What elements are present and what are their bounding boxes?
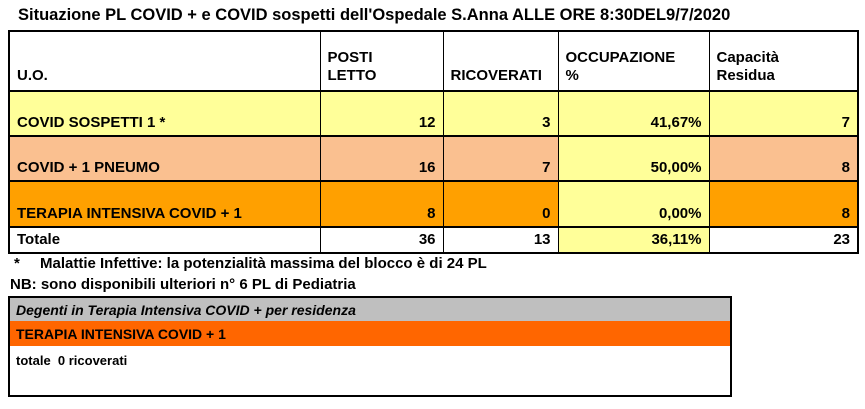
residence-total-line: totale 0 ricoverati — [10, 346, 730, 375]
posti-letto-cell: 16 — [320, 136, 443, 181]
residence-box-header: Degenti in Terapia Intensiva COVID + per… — [10, 298, 730, 321]
posti-letto-cell: 12 — [320, 91, 443, 136]
residence-ward-row: TERAPIA INTENSIVA COVID + 1 — [10, 321, 730, 346]
asterisk-marker: * — [14, 255, 40, 272]
occupazione-cell: 50,00% — [558, 136, 709, 181]
ricoverati-cell: 3 — [443, 91, 558, 136]
occupazione-cell: 0,00% — [558, 181, 709, 227]
page-title: Situazione PL COVID + e COVID sospetti d… — [18, 6, 730, 25]
header-posti-letto: POSTI LETTO — [320, 31, 443, 91]
capacita-residua-cell: 8 — [709, 136, 858, 181]
ricoverati-cell: 0 — [443, 181, 558, 227]
footnote-text: Malattie Infettive: la potenzialità mass… — [40, 255, 487, 272]
totale-posti-letto-cell: 36 — [320, 227, 443, 253]
header-ricoverati: RICOVERATI — [443, 31, 558, 91]
totale-label-cell: Totale — [9, 227, 320, 253]
covid-beds-table: U.O. POSTI LETTO RICOVERATI OCCUPAZIONE … — [8, 30, 859, 254]
footnote-malattie-infettive: * Malattie Infettive: la potenzialità ma… — [14, 255, 487, 272]
table-row-covid-pneumo: COVID + 1 PNEUMO 16 7 50,00% 8 — [9, 136, 858, 181]
header-uo: U.O. — [9, 31, 320, 91]
header-capacita-residua: Capacità Residua — [709, 31, 858, 91]
residence-box: Degenti in Terapia Intensiva COVID + per… — [8, 296, 732, 397]
capacita-residua-cell: 7 — [709, 91, 858, 136]
uo-cell: COVID + 1 PNEUMO — [9, 136, 320, 181]
totale-occupazione-cell: 36,11% — [558, 227, 709, 253]
totale-capacita-residua-cell: 23 — [709, 227, 858, 253]
table-row-terapia-intensiva: TERAPIA INTENSIVA COVID + 1 8 0 0,00% 8 — [9, 181, 858, 227]
header-occupazione: OCCUPAZIONE % — [558, 31, 709, 91]
ricoverati-cell: 7 — [443, 136, 558, 181]
totale-ricoverati-cell: 13 — [443, 227, 558, 253]
table-row-totale: Totale 36 13 36,11% 23 — [9, 227, 858, 253]
footnote-pediatria: NB: sono disponibili ulteriori n° 6 PL d… — [10, 276, 356, 293]
uo-cell: TERAPIA INTENSIVA COVID + 1 — [9, 181, 320, 227]
capacita-residua-cell: 8 — [709, 181, 858, 227]
posti-letto-cell: 8 — [320, 181, 443, 227]
uo-cell: COVID SOSPETTI 1 * — [9, 91, 320, 136]
table-row-covid-sospetti: COVID SOSPETTI 1 * 12 3 41,67% 7 — [9, 91, 858, 136]
occupazione-cell: 41,67% — [558, 91, 709, 136]
table-header-row: U.O. POSTI LETTO RICOVERATI OCCUPAZIONE … — [9, 31, 858, 91]
